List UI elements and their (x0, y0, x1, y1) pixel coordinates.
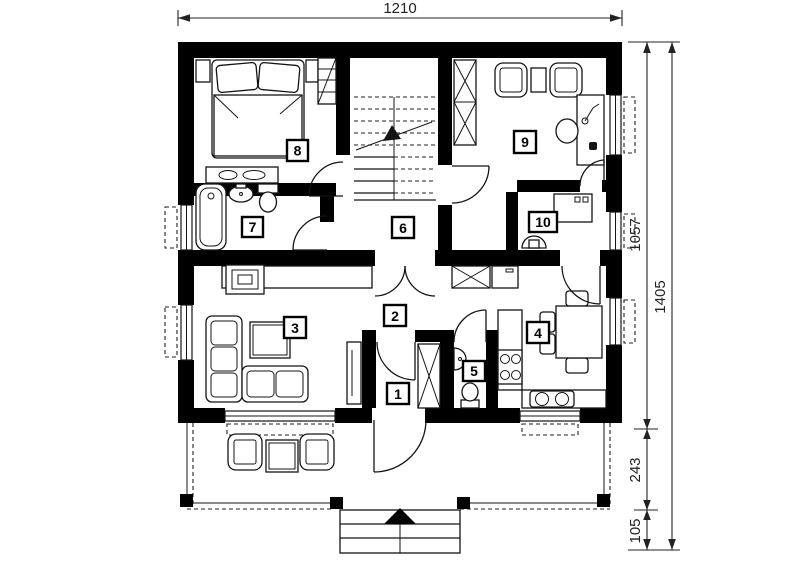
desk-icon (556, 95, 604, 165)
room-label-8: 8 (287, 140, 308, 161)
office-door-icon (452, 166, 489, 203)
room-label-1: 1 (387, 383, 409, 404)
room-label-6: 6 (392, 217, 414, 238)
wc-door-icon (454, 310, 486, 342)
window-living-terrace-icon (225, 411, 335, 435)
double-sink-icon (530, 391, 574, 407)
terrace-armchair-icon (300, 434, 334, 470)
staircase-icon (354, 97, 436, 200)
x-wardrobe-icon (454, 60, 476, 145)
dimension-top: 1210 (178, 0, 622, 26)
wc-toilet-icon (461, 383, 479, 408)
nightstand-left-icon (196, 60, 210, 82)
fridge-icon (492, 266, 518, 288)
room-number: 8 (294, 143, 302, 159)
entrance-door-icon (374, 420, 426, 472)
armchair-icon (550, 63, 582, 97)
terrace-armchair-icon (228, 434, 262, 470)
hall-double-door-icon (375, 266, 435, 296)
pantry-cabinet-icon (452, 266, 490, 288)
side-table-icon (531, 68, 546, 92)
window-office-right-icon (610, 95, 635, 155)
room-number: 4 (534, 325, 542, 341)
room-label-10: 10 (529, 212, 557, 232)
floor-plan-drawing: 1210 1057 243 105 1405 (0, 0, 800, 565)
room-number: 6 (399, 220, 407, 236)
dimension-right-243: 243 (627, 457, 644, 482)
window-living-left-icon (165, 305, 192, 360)
room-label-9: 9 (514, 131, 536, 153)
terrace-table-icon (266, 440, 298, 472)
phone-icon (589, 142, 597, 150)
toilet-bath-icon (258, 184, 278, 212)
desk-chair-icon (556, 119, 578, 143)
window-bath-left-icon (165, 205, 192, 250)
dining-chair-icon (566, 358, 588, 373)
room-label-3: 3 (284, 317, 306, 338)
room-label-5: 5 (463, 361, 485, 381)
kitchen-stove-icon (498, 350, 522, 384)
window-kitchen-terrace-icon (520, 411, 580, 435)
room-label-7: 7 (242, 217, 263, 237)
room-label-2: 2 (384, 305, 406, 326)
room-number: 5 (470, 363, 478, 379)
dimension-right-1405: 1405 (652, 280, 669, 313)
nightstand-right-icon (306, 60, 318, 82)
dresser-icon (206, 167, 278, 183)
fireplace-icon (226, 265, 264, 294)
room-number: 9 (521, 134, 529, 150)
dimension-right-105: 105 (627, 518, 644, 543)
dimension-top-label: 1210 (383, 0, 416, 17)
armchair-icon (495, 63, 527, 97)
room-label-4: 4 (527, 322, 549, 343)
room-number: 10 (535, 214, 551, 230)
entrance-steps-icon (340, 508, 460, 553)
built-in-closet-icon (418, 344, 440, 408)
room-number: 7 (249, 219, 257, 235)
bathtub-icon (196, 184, 226, 250)
vestibule-door-icon (377, 342, 415, 380)
kitchen-counter-bottom-icon (522, 390, 606, 408)
room-number: 3 (291, 320, 299, 336)
shelf-wardrobe-icon (318, 58, 336, 104)
wall-basin-icon (522, 236, 546, 248)
floor-plan-canvas: 1210 1057 243 105 1405 (0, 0, 800, 565)
tv-panel-icon (347, 342, 361, 404)
dimension-right: 1057 243 105 1405 (627, 42, 680, 550)
window-dining-right-icon (610, 298, 635, 345)
dining-chair-icon (566, 291, 588, 306)
washing-machine-icon (554, 194, 592, 222)
terrace (180, 423, 610, 509)
room-number: 1 (394, 386, 402, 402)
room-number: 2 (391, 308, 399, 324)
